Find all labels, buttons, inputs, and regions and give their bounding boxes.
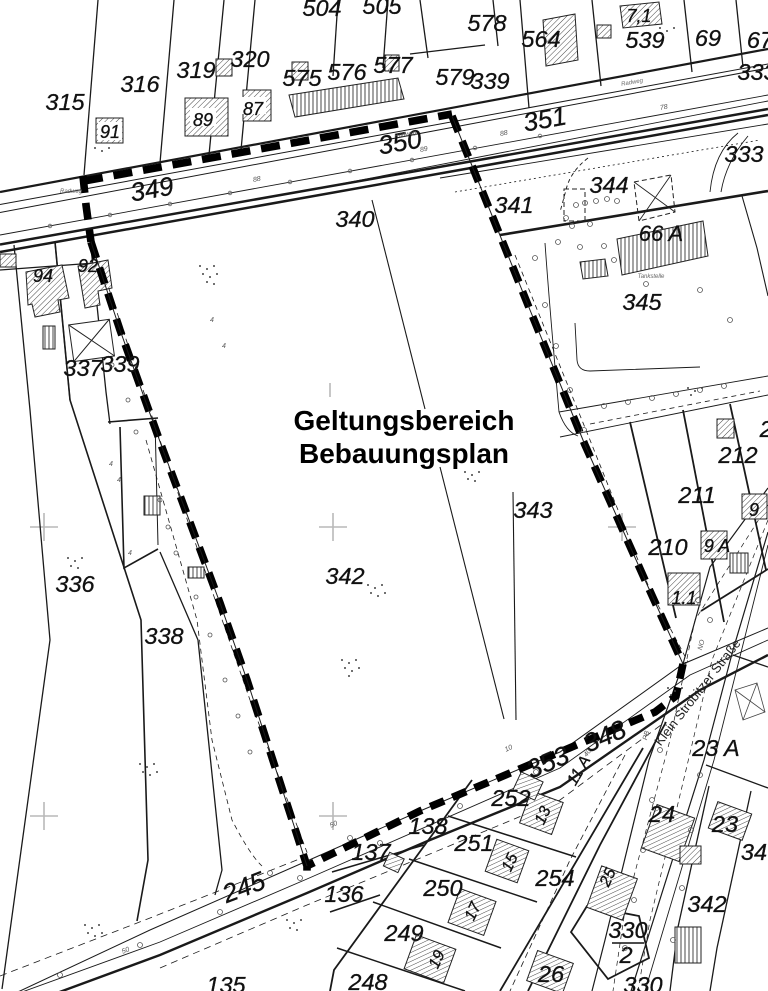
svg-text:212: 212 bbox=[717, 442, 757, 468]
svg-text:330: 330 bbox=[608, 917, 647, 943]
svg-text:88: 88 bbox=[252, 176, 261, 184]
svg-text:9: 9 bbox=[749, 500, 759, 520]
svg-text:Geltungsbereich: Geltungsbereich bbox=[294, 405, 515, 436]
svg-text:66 A: 66 A bbox=[639, 221, 683, 246]
svg-text:Tankstelle: Tankstelle bbox=[638, 274, 665, 280]
svg-text:341: 341 bbox=[494, 192, 533, 218]
svg-text:338: 338 bbox=[144, 623, 183, 649]
svg-text:69: 69 bbox=[695, 25, 721, 51]
svg-text:7,1: 7,1 bbox=[626, 6, 651, 26]
svg-text:254: 254 bbox=[534, 865, 574, 891]
svg-text:89: 89 bbox=[419, 146, 428, 154]
svg-text:4: 4 bbox=[128, 550, 132, 557]
svg-text:2: 2 bbox=[759, 416, 768, 442]
svg-text:564: 564 bbox=[521, 26, 560, 52]
svg-text:505: 505 bbox=[362, 0, 402, 19]
svg-text:78: 78 bbox=[659, 104, 668, 112]
svg-text:67: 67 bbox=[747, 27, 768, 53]
svg-text:24: 24 bbox=[648, 801, 675, 827]
svg-text:211: 211 bbox=[677, 482, 715, 508]
svg-text:315: 315 bbox=[45, 89, 85, 115]
svg-text:320: 320 bbox=[230, 46, 269, 72]
svg-text:92: 92 bbox=[78, 256, 98, 276]
svg-text:1.1: 1.1 bbox=[671, 588, 696, 608]
svg-text:26: 26 bbox=[537, 961, 565, 987]
svg-text:87: 87 bbox=[243, 99, 264, 119]
svg-text:342: 342 bbox=[325, 563, 364, 589]
svg-text:4: 4 bbox=[109, 461, 113, 468]
svg-text:210: 210 bbox=[647, 534, 687, 560]
svg-text:9 A: 9 A bbox=[704, 536, 730, 556]
svg-text:Bebauungsplan: Bebauungsplan bbox=[299, 438, 509, 469]
svg-text:576: 576 bbox=[327, 59, 367, 85]
svg-text:34: 34 bbox=[741, 839, 767, 865]
svg-text:504: 504 bbox=[302, 0, 341, 21]
svg-text:339: 339 bbox=[470, 68, 509, 94]
svg-text:91: 91 bbox=[100, 122, 120, 142]
svg-text:4: 4 bbox=[117, 477, 121, 484]
svg-text:539: 539 bbox=[625, 27, 664, 53]
svg-text:578: 578 bbox=[467, 10, 506, 36]
svg-text:319: 319 bbox=[176, 57, 215, 83]
svg-text:23: 23 bbox=[711, 811, 738, 837]
svg-text:575: 575 bbox=[282, 65, 322, 91]
svg-text:343: 343 bbox=[513, 497, 552, 523]
svg-text:345: 345 bbox=[622, 289, 662, 315]
svg-text:333: 333 bbox=[737, 59, 768, 85]
svg-text:137: 137 bbox=[351, 839, 391, 865]
svg-text:94: 94 bbox=[33, 266, 53, 286]
svg-text:250: 250 bbox=[422, 875, 462, 901]
svg-text:339: 339 bbox=[100, 351, 139, 377]
svg-text:579: 579 bbox=[435, 64, 474, 90]
svg-text:88: 88 bbox=[499, 130, 508, 138]
svg-text:249: 249 bbox=[383, 920, 423, 946]
svg-text:252: 252 bbox=[490, 785, 530, 811]
svg-text:340: 340 bbox=[335, 206, 374, 232]
svg-text:577: 577 bbox=[373, 52, 413, 78]
svg-text:23 A: 23 A bbox=[691, 735, 739, 761]
svg-text:316: 316 bbox=[120, 71, 160, 97]
svg-text:Radweg: Radweg bbox=[60, 189, 83, 195]
svg-text:251: 251 bbox=[453, 830, 493, 856]
svg-text:135: 135 bbox=[206, 972, 246, 991]
svg-text:336: 336 bbox=[55, 571, 95, 597]
svg-text:138: 138 bbox=[408, 813, 447, 839]
svg-text:4: 4 bbox=[222, 343, 226, 350]
svg-text:4: 4 bbox=[210, 317, 214, 324]
svg-text:344: 344 bbox=[589, 172, 628, 198]
svg-text:330: 330 bbox=[623, 972, 662, 991]
svg-text:333: 333 bbox=[724, 141, 763, 167]
svg-text:89: 89 bbox=[193, 110, 213, 130]
svg-text:136: 136 bbox=[324, 881, 364, 907]
svg-text:248: 248 bbox=[347, 969, 387, 991]
svg-text:342: 342 bbox=[687, 891, 726, 917]
svg-text:337: 337 bbox=[63, 355, 103, 381]
